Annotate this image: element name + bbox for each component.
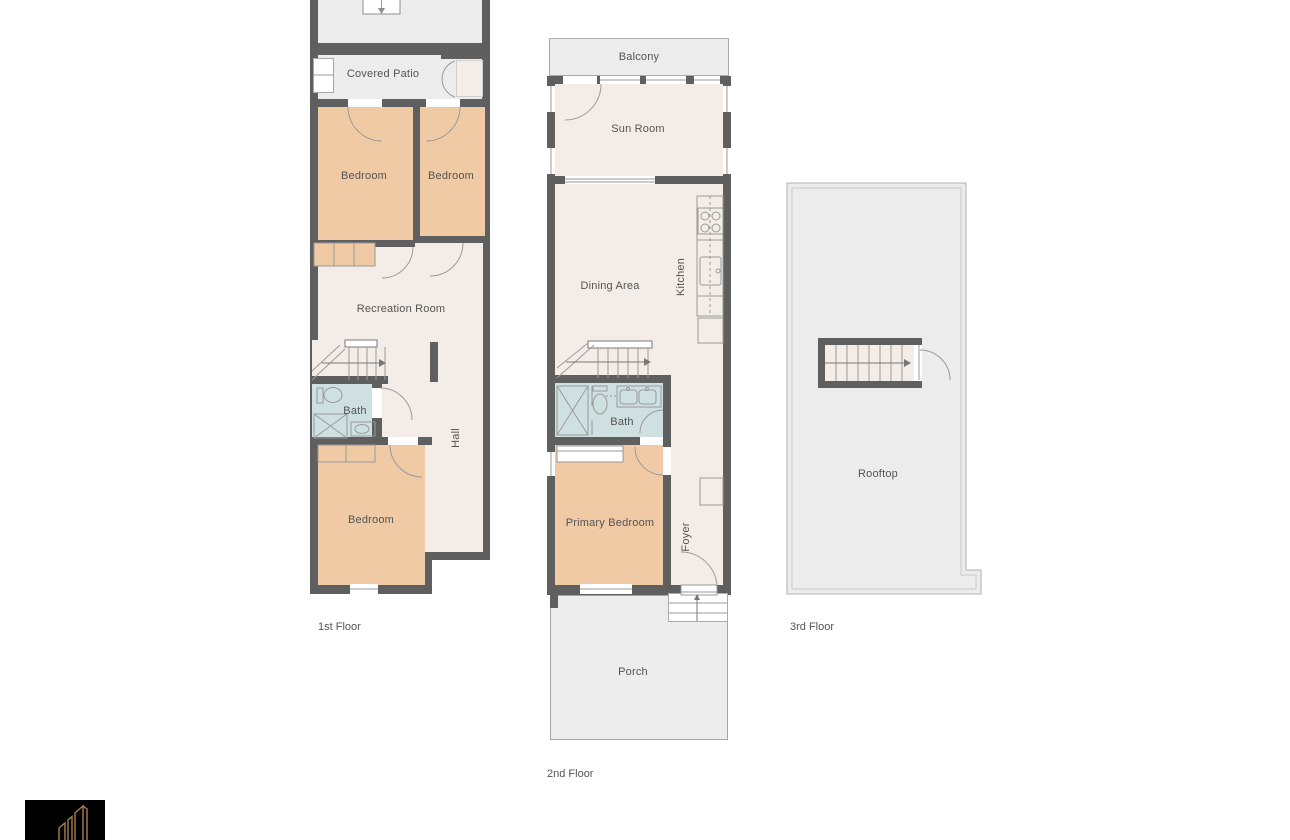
- door-opening: [348, 99, 382, 107]
- room-dining-kitchen: [555, 184, 723, 345]
- room-entry-alcove: [456, 60, 483, 97]
- covered-patio-closet: [313, 58, 334, 93]
- room-primary-bedroom: [555, 445, 665, 585]
- window: [694, 76, 720, 84]
- wall-stub-covered-patio: [441, 43, 490, 59]
- window: [600, 76, 640, 84]
- window: [646, 76, 686, 84]
- room-label-bedroom-left: Bedroom: [341, 170, 387, 182]
- room-label-bedroom-right: Bedroom: [428, 170, 474, 182]
- room-label-foyer: Foyer: [680, 522, 692, 551]
- room-bath-second: [555, 383, 665, 437]
- door-opening: [388, 437, 418, 445]
- room-label-sun-room: Sun Room: [611, 123, 665, 135]
- room-label-primary-bedroom: Primary Bedroom: [566, 517, 655, 529]
- door-opening: [914, 345, 922, 381]
- stairwell-stairs: [825, 345, 915, 381]
- room-label-hall: Hall: [450, 428, 462, 448]
- room-label-kitchen: Kitchen: [675, 258, 687, 296]
- room-label-dining-area: Dining Area: [580, 280, 639, 292]
- door-opening: [563, 76, 597, 84]
- wall-between-bedrooms: [413, 107, 420, 243]
- room-label-covered-patio: Covered Patio: [347, 68, 419, 80]
- window: [723, 148, 731, 174]
- room-label-rooftop: Rooftop: [858, 468, 898, 480]
- wall-stub-hall: [430, 342, 438, 382]
- door-arc: [920, 350, 950, 380]
- floor-label-second: 2nd Floor: [547, 768, 593, 780]
- window: [547, 148, 555, 174]
- building-logo-icon: [25, 800, 105, 840]
- wall-bath2-top: [547, 375, 671, 383]
- stairs-area-second: [555, 345, 655, 378]
- room-patio: [318, 0, 482, 43]
- wall-bedrooms-top: [310, 99, 490, 107]
- window: [547, 452, 555, 476]
- room-label-recreation-room: Recreation Room: [357, 303, 446, 315]
- window: [350, 584, 378, 594]
- wall-stub-porch: [550, 592, 558, 608]
- room-foyer-landing: [655, 345, 671, 375]
- wall-bath2-right: [663, 375, 671, 445]
- room-foyer: [671, 345, 723, 585]
- door-opening: [640, 437, 663, 445]
- door-opening: [663, 447, 671, 475]
- floor-label-first: 1st Floor: [318, 621, 361, 633]
- entry-steps: [668, 593, 728, 622]
- wall-bedroom-right-bottom: [420, 236, 483, 243]
- floor-label-third: 3rd Floor: [790, 621, 834, 633]
- floorplan-canvas: Patio Covered Patio Bedroom Bedroom Recr…: [0, 0, 1290, 840]
- room-label-porch: Porch: [618, 666, 648, 678]
- room-label-balcony: Balcony: [619, 51, 660, 63]
- room-label-bath-first: Bath: [343, 405, 366, 417]
- wall-bath-bottom: [310, 437, 380, 445]
- glass-door-opening: [565, 176, 655, 184]
- window: [547, 86, 555, 112]
- room-label-bath-second: Bath: [610, 416, 633, 428]
- door-opening: [372, 388, 382, 418]
- window: [580, 584, 632, 594]
- closet-strip: [314, 243, 375, 266]
- room-label-bedroom-lower: Bedroom: [348, 514, 394, 526]
- room-label-patio: Patio: [424, 0, 450, 3]
- door-opening: [426, 99, 460, 107]
- window: [723, 86, 731, 112]
- brand-logo: [25, 800, 105, 840]
